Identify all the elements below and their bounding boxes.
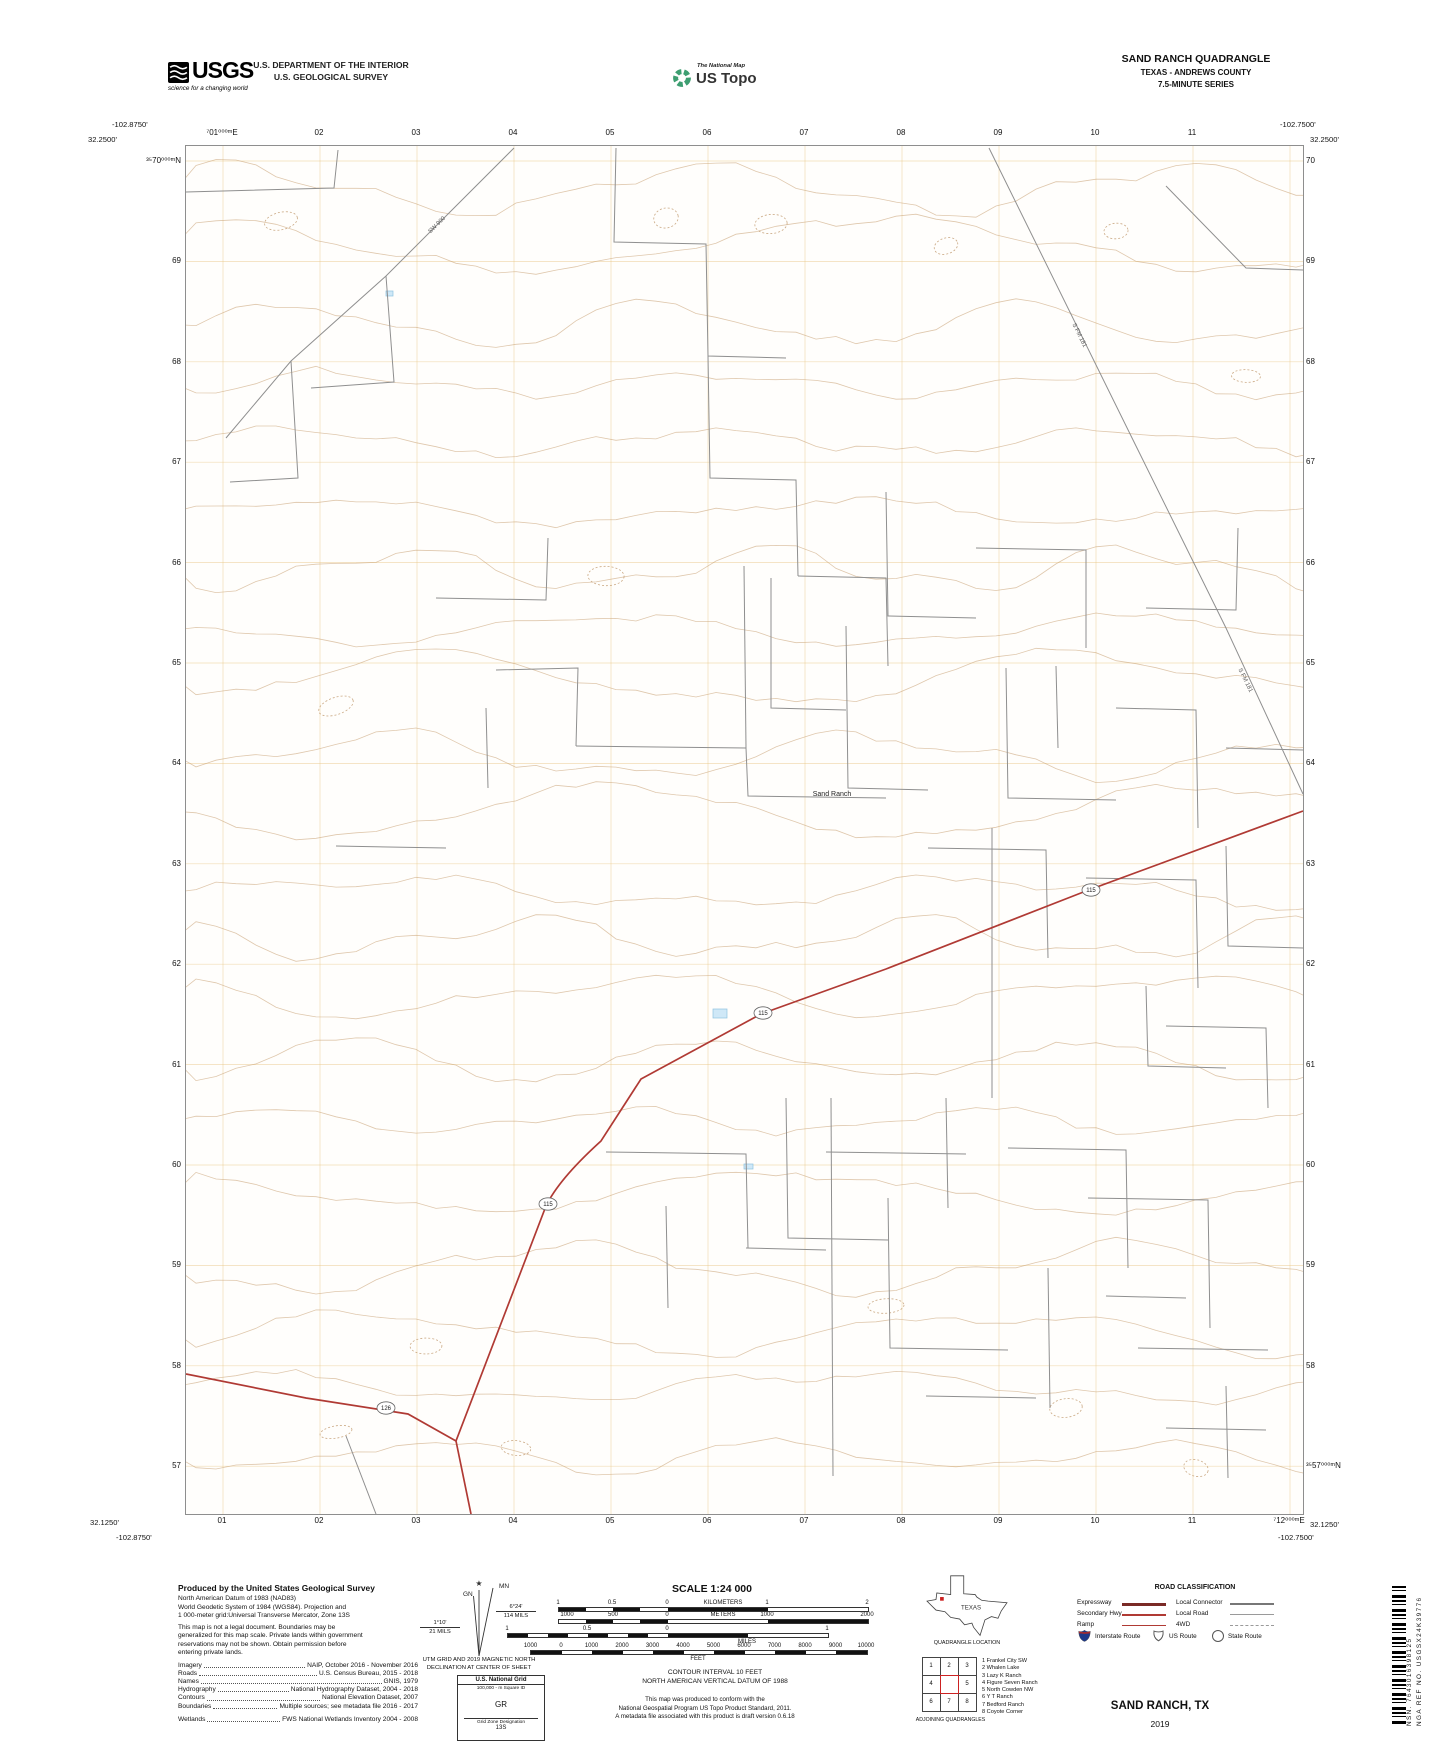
grid-label-bottom: 09 (994, 1516, 1003, 1525)
usgs-logo-text: USGS (192, 57, 253, 84)
interstate-shield-icon (1078, 1629, 1091, 1642)
scale-number: 0.5 (608, 1600, 616, 1606)
grid-label-top: 11 (1188, 128, 1196, 137)
legal-line: entering private lands. (178, 1649, 418, 1658)
road-class-title: ROAD CLASSIFICATION (1120, 1584, 1270, 1591)
grid-label-left: ³⁵70⁰⁰⁰ᵐN (125, 156, 181, 165)
texas-outline-icon: TEXAS (925, 1575, 1009, 1637)
source-row: BoundariesMultiple sources; see metadata… (178, 1703, 418, 1711)
us-route-shield-icon (1152, 1629, 1165, 1642)
scale-number: 10000 (858, 1643, 875, 1649)
adjoining-names: 1 Frankel City SW2 Whalen Lake3 Lazy K R… (982, 1658, 1038, 1716)
road-class-sample (1122, 1614, 1166, 1616)
adjoining-cell: 5 (958, 1675, 977, 1694)
grid-label-right: 59 (1306, 1260, 1315, 1269)
route-shield: 126 (377, 1402, 395, 1414)
map-area: 115115115126 Sand RanchS FM 181S FM 181S… (185, 145, 1304, 1515)
grid-label-bottom: 11 (1188, 1516, 1196, 1525)
adjoining-name: 6 Y T Ranch (982, 1694, 1038, 1701)
grid-label-left: 61 (125, 1060, 181, 1069)
source-row: ContoursNational Elevation Dataset, 2007 (178, 1694, 418, 1702)
map-place-labels: Sand RanchS FM 181S FM 181SW 900 (428, 215, 1254, 798)
road-class-sample (1230, 1625, 1274, 1626)
quadrangle-location: TEXAS (922, 1575, 1012, 1642)
datum-line: North American Datum of 1983 (NAD83) (178, 1595, 418, 1604)
scale-number: 5000 (707, 1643, 720, 1649)
adjoining-name: 3 Lazy K Ranch (982, 1673, 1038, 1680)
conformance-line: A metadata file associated with this pro… (575, 1713, 835, 1722)
usng-box: U.S. National Grid 100,000 - m Square ID… (457, 1675, 545, 1741)
scale-number: 500 (608, 1612, 618, 1618)
grid-label-right: 61 (1306, 1060, 1315, 1069)
road-class-sample (1122, 1625, 1166, 1626)
conformance-line: This map was produced to conform with th… (575, 1696, 835, 1705)
grid-label-top: 10 (1091, 128, 1100, 137)
barcode-nga: NGA REF NO. USGSX24K39776 (1416, 1584, 1423, 1726)
source-row: WetlandsFWS National Wetlands Inventory … (178, 1716, 418, 1724)
grid-label-left: 58 (125, 1361, 181, 1370)
magnetic-north-label: MN (499, 1583, 509, 1590)
grid-label-bottom: 01 (218, 1516, 227, 1525)
scale-number: 0 (665, 1612, 668, 1618)
route-shield: 115 (754, 1007, 772, 1019)
map-label: Sand Ranch (813, 791, 852, 798)
scale-number: 2000 (860, 1612, 873, 1618)
grid-label-right: 70 (1306, 156, 1315, 165)
datum-line: World Geodetic System of 1984 (WGS84). P… (178, 1604, 418, 1613)
state-route-circle-icon (1212, 1630, 1224, 1642)
scale-bar (558, 1607, 869, 1612)
true-north-star-icon: ★ (475, 1579, 482, 1588)
adjoining-cell: 4 (922, 1675, 941, 1694)
grid-label-bottom: 08 (897, 1516, 906, 1525)
grid-label-bottom: 10 (1091, 1516, 1100, 1525)
sheet-year: 2019 (1060, 1719, 1260, 1729)
adjoining-cell: 3 (958, 1657, 977, 1676)
grid-label-bottom: 02 (315, 1516, 324, 1525)
state-route-label: State Route (1228, 1633, 1262, 1640)
usng-divider (464, 1718, 538, 1719)
highway-tx115 (456, 811, 1303, 1514)
grid-label-bottom: ⁷12⁰⁰⁰ᵐE (1273, 1516, 1304, 1525)
contour-lines (186, 160, 1303, 1480)
us-route-label: US Route (1169, 1633, 1197, 1640)
datum-line: 1 000-meter grid:Universal Transverse Me… (178, 1612, 418, 1621)
usng-title: U.S. National Grid (458, 1676, 544, 1685)
grid-label-top: 08 (897, 128, 906, 137)
scale-unit: METERS (710, 1612, 735, 1618)
scale-number: 1000 (560, 1612, 573, 1618)
adjoining-cell: 6 (922, 1693, 941, 1712)
adjoining-cell: 8 (958, 1693, 977, 1712)
svg-text:126: 126 (381, 1406, 392, 1412)
quadrangle-location-caption: QUADRANGLE LOCATION (912, 1640, 1022, 1646)
grid-label-top: 06 (703, 128, 712, 137)
grid-label-left: 64 (125, 758, 181, 767)
grid-label-top: 02 (315, 128, 324, 137)
quad-title: SAND RANCH QUADRANGLE (1096, 53, 1296, 65)
natmap-label: The National Map (697, 63, 745, 69)
road-class-label: Local Connector (1176, 1599, 1223, 1606)
adjoining-name: 5 North Cowden NW (982, 1687, 1038, 1694)
scale-number: 1 (765, 1600, 768, 1606)
texas-label: TEXAS (961, 1604, 981, 1611)
grid-label-left: 59 (125, 1260, 181, 1269)
quad-title-block: SAND RANCH QUADRANGLE TEXAS - ANDREWS CO… (1096, 53, 1296, 89)
contour-interval: CONTOUR INTERVAL 10 FEET NORTH AMERICAN … (615, 1668, 815, 1686)
water-features (386, 291, 753, 1169)
conformance-note: This map was produced to conform with th… (575, 1696, 835, 1722)
grid-label-left: 69 (125, 256, 181, 265)
road-class-sample (1230, 1614, 1274, 1615)
grid-label-left: 65 (125, 658, 181, 667)
grid-label-top: 05 (606, 128, 615, 137)
grid-label-left: 60 (125, 1160, 181, 1169)
scale-number: 1000 (585, 1643, 598, 1649)
conformance-line: National Geospatial Program US Topo Prod… (575, 1705, 835, 1714)
agency-line-1: U.S. DEPARTMENT OF THE INTERIOR (245, 59, 417, 71)
produced-by-block: Produced by the United States Geological… (178, 1583, 418, 1724)
grid-label-left: 67 (125, 457, 181, 466)
adjoining-name: 1 Frankel City SW (982, 1658, 1038, 1665)
grid-label-left: 62 (125, 959, 181, 968)
grid-label-bottom: 03 (412, 1516, 421, 1525)
corner-bottom-right-lon: -102.7500' (1278, 1533, 1314, 1542)
grid-label-right: 66 (1306, 558, 1315, 567)
scale-number: 2 (865, 1600, 868, 1606)
usng-subtitle: 100,000 - m Square ID (458, 1686, 544, 1691)
map-label: S FM 181 (1071, 323, 1088, 350)
scale-number: 8000 (798, 1643, 811, 1649)
adjoining-name: 8 Coyote Corner (982, 1709, 1038, 1716)
scale-number: 2000 (615, 1643, 628, 1649)
route-shield: 115 (1082, 884, 1100, 896)
road-class-label: Secondary Hwy (1077, 1610, 1122, 1617)
scale-number: 3000 (646, 1643, 659, 1649)
gn-declination-value: 1°10' 21 MILS (420, 1620, 460, 1636)
grid-label-right: 68 (1306, 357, 1315, 366)
scale-number: 9000 (829, 1643, 842, 1649)
grid-label-right: 69 (1306, 256, 1315, 265)
adjoining-name: 4 Figure Seven Ranch (982, 1680, 1038, 1687)
quad-series: 7.5-MINUTE SERIES (1096, 80, 1296, 89)
quad-location-dot (940, 1597, 944, 1601)
grid-label-top: 07 (800, 128, 809, 137)
scale-number: 0 (665, 1626, 668, 1632)
corner-bottom-left-lon: -102.8750' (116, 1533, 152, 1542)
corner-top-left-lon: -102.8750' (112, 120, 148, 129)
road-class-sample (1230, 1603, 1274, 1605)
scale-number: 0 (665, 1600, 668, 1606)
adjoining-caption: ADJOINING QUADRANGLES (898, 1717, 1003, 1723)
grid-label-right: 60 (1306, 1160, 1315, 1169)
barcode-nsn: NSN. 7643016398125 (1406, 1584, 1413, 1726)
source-row: HydrographyNational Hydrography Dataset,… (178, 1686, 418, 1694)
scale-bar (507, 1633, 829, 1638)
grid-label-right: 67 (1306, 457, 1315, 466)
grid-label-right: 62 (1306, 959, 1315, 968)
grid-label-top: 09 (994, 128, 1003, 137)
source-row: NamesGNIS, 1979 (178, 1678, 418, 1686)
utm-grid (186, 146, 1303, 1514)
sheet-name: SAND RANCH, TX (1060, 1700, 1260, 1712)
scale-bar (558, 1619, 869, 1624)
grid-label-right: ³⁵57⁰⁰⁰ᵐN (1306, 1461, 1341, 1470)
grid-label-top: 03 (412, 128, 421, 137)
scale-number: 0.5 (583, 1626, 591, 1632)
grid-label-right: 64 (1306, 758, 1315, 767)
adjoining-cell: 1 (922, 1657, 941, 1676)
scale-number: 1000 (760, 1612, 773, 1618)
scale-unit: FEET (690, 1656, 705, 1662)
road-class-label: Ramp (1077, 1621, 1094, 1628)
adjoining-cell: 7 (940, 1693, 959, 1712)
scale-number: 1 (556, 1600, 559, 1606)
grid-label-right: 63 (1306, 859, 1315, 868)
legal-line: This map is not a legal document. Bounda… (178, 1624, 418, 1633)
scale-number: 1000 (524, 1643, 537, 1649)
scale-number: 6000 (737, 1643, 750, 1649)
corner-top-right-lat: 32.2500' (1310, 135, 1339, 144)
mn-declination-value: 6°24' 114 MILS (496, 1604, 536, 1620)
scale-number: 0 (559, 1643, 562, 1649)
scale-number: 7000 (768, 1643, 781, 1649)
grid-label-bottom: 05 (606, 1516, 615, 1525)
source-row: RoadsU.S. Census Bureau, 2015 - 2018 (178, 1670, 418, 1678)
adjoining-grid: 12345678 (922, 1657, 976, 1711)
road-class-label: 4WD (1176, 1621, 1190, 1628)
grid-label-top: ⁷01⁰⁰⁰ᵐE (206, 128, 237, 137)
scale-bar (530, 1650, 868, 1655)
grid-label-bottom: 04 (509, 1516, 518, 1525)
source-row: ImageryNAIP, October 2016 - November 201… (178, 1662, 418, 1670)
legal-line: reservations may not be shown. Obtain pe… (178, 1641, 418, 1650)
quad-subtitle: TEXAS - ANDREWS COUNTY (1096, 68, 1296, 77)
road-class-sample (1122, 1603, 1166, 1606)
grid-label-top: 04 (509, 128, 518, 137)
scale-title: SCALE 1:24 000 (612, 1583, 812, 1595)
highway-tx126 (186, 1374, 456, 1441)
adjoining-name: 2 Whalen Lake (982, 1665, 1038, 1672)
map-label: SW 900 (428, 215, 448, 235)
usng-zone-value: 13S (458, 1725, 544, 1731)
produced-title: Produced by the United States Geological… (178, 1583, 418, 1593)
adjoining-cell: 2 (940, 1657, 959, 1676)
grid-label-left: 63 (125, 859, 181, 868)
corner-top-right-lon: -102.7500' (1280, 120, 1316, 129)
scale-unit: KILOMETERS (704, 1600, 743, 1606)
scale-number: 4000 (676, 1643, 689, 1649)
legal-line: generalized for this map scale. Private … (178, 1632, 418, 1641)
grid-label-left: 57 (125, 1461, 181, 1470)
grid-label-left: 66 (125, 558, 181, 567)
road-class-label: Local Road (1176, 1610, 1208, 1617)
svg-text:115: 115 (1086, 888, 1096, 894)
map-canvas: 115115115126 Sand RanchS FM 181S FM 181S… (186, 146, 1303, 1514)
local-roads (186, 148, 1303, 1514)
road-class-label: Expressway (1077, 1599, 1111, 1606)
agency-line-2: U.S. GEOLOGICAL SURVEY (245, 71, 417, 83)
corner-bottom-left-lat: 32.1250' (90, 1518, 119, 1527)
adjoining-name: 7 Bedford Ranch (982, 1702, 1038, 1709)
usng-square-id: GR (458, 1700, 544, 1709)
grid-label-left: 68 (125, 357, 181, 366)
datum-lines: North American Datum of 1983 (NAD83)Worl… (178, 1595, 418, 1621)
adjoining-cell (940, 1675, 959, 1694)
grid-label-right: 65 (1306, 658, 1315, 667)
declination-caption: UTM GRID AND 2019 MAGNETIC NORTH DECLINA… (400, 1656, 558, 1672)
corner-top-left-lat: 32.2500' (88, 135, 117, 144)
route-shield: 115 (539, 1198, 557, 1210)
grid-label-bottom: 06 (703, 1516, 712, 1525)
corner-bottom-right-lat: 32.1250' (1310, 1520, 1339, 1529)
grid-label-bottom: 07 (800, 1516, 809, 1525)
legal-lines: This map is not a legal document. Bounda… (178, 1624, 418, 1658)
svg-text:115: 115 (543, 1202, 553, 1208)
highways (186, 811, 1303, 1514)
svg-text:115: 115 (758, 1011, 768, 1017)
interstate-route-label: Interstate Route (1095, 1633, 1140, 1640)
ustopo-pinwheel-icon (672, 68, 692, 93)
barcode (1392, 1586, 1406, 1726)
usgs-topo-sheet: USGS science for a changing world U.S. D… (0, 0, 1445, 1746)
source-list: ImageryNAIP, October 2016 - November 201… (178, 1662, 418, 1724)
ustopo-label: US Topo (696, 70, 757, 87)
grid-label-right: 58 (1306, 1361, 1315, 1370)
grid-north-label: GN (463, 1591, 473, 1598)
agency-lines: U.S. DEPARTMENT OF THE INTERIOR U.S. GEO… (245, 59, 417, 83)
scale-number: 1 (505, 1626, 508, 1632)
scale-number: 1 (825, 1626, 828, 1632)
usgs-logo-icon (168, 62, 189, 83)
usgs-tagline: science for a changing world (168, 85, 248, 92)
